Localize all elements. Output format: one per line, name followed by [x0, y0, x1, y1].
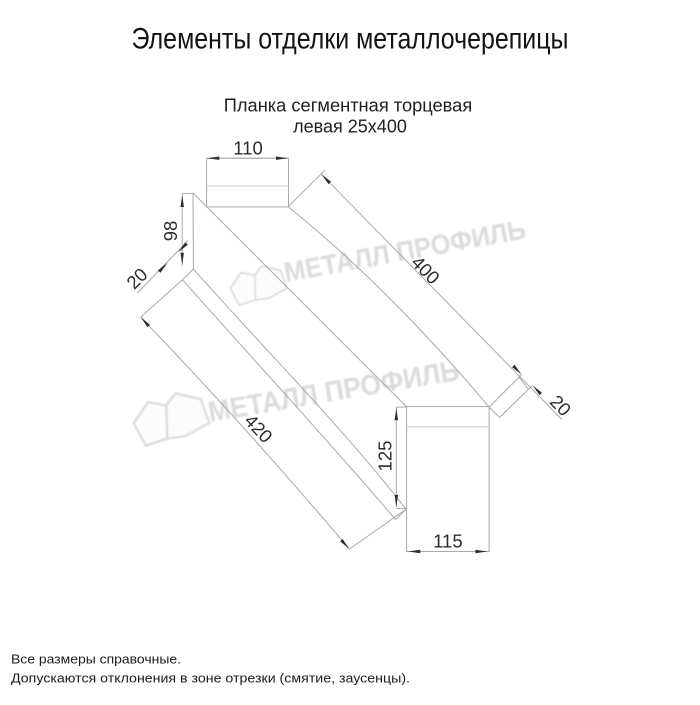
svg-text:110: 110: [233, 138, 263, 159]
svg-text:115: 115: [433, 531, 463, 552]
svg-text:125: 125: [374, 441, 395, 472]
svg-text:Все размеры справочные.: Все размеры справочные.: [11, 652, 181, 667]
svg-text:98: 98: [160, 221, 181, 242]
svg-text:Допускаются отклонения в зоне: Допускаются отклонения в зоне отрезки (с…: [11, 671, 410, 686]
svg-text:Планка сегментная торцевая: Планка сегментная торцевая: [224, 96, 473, 116]
svg-text:Элементы отделки металлочерепи: Элементы отделки металлочерепицы: [132, 23, 569, 56]
svg-text:левая 25х400: левая 25х400: [293, 117, 407, 137]
